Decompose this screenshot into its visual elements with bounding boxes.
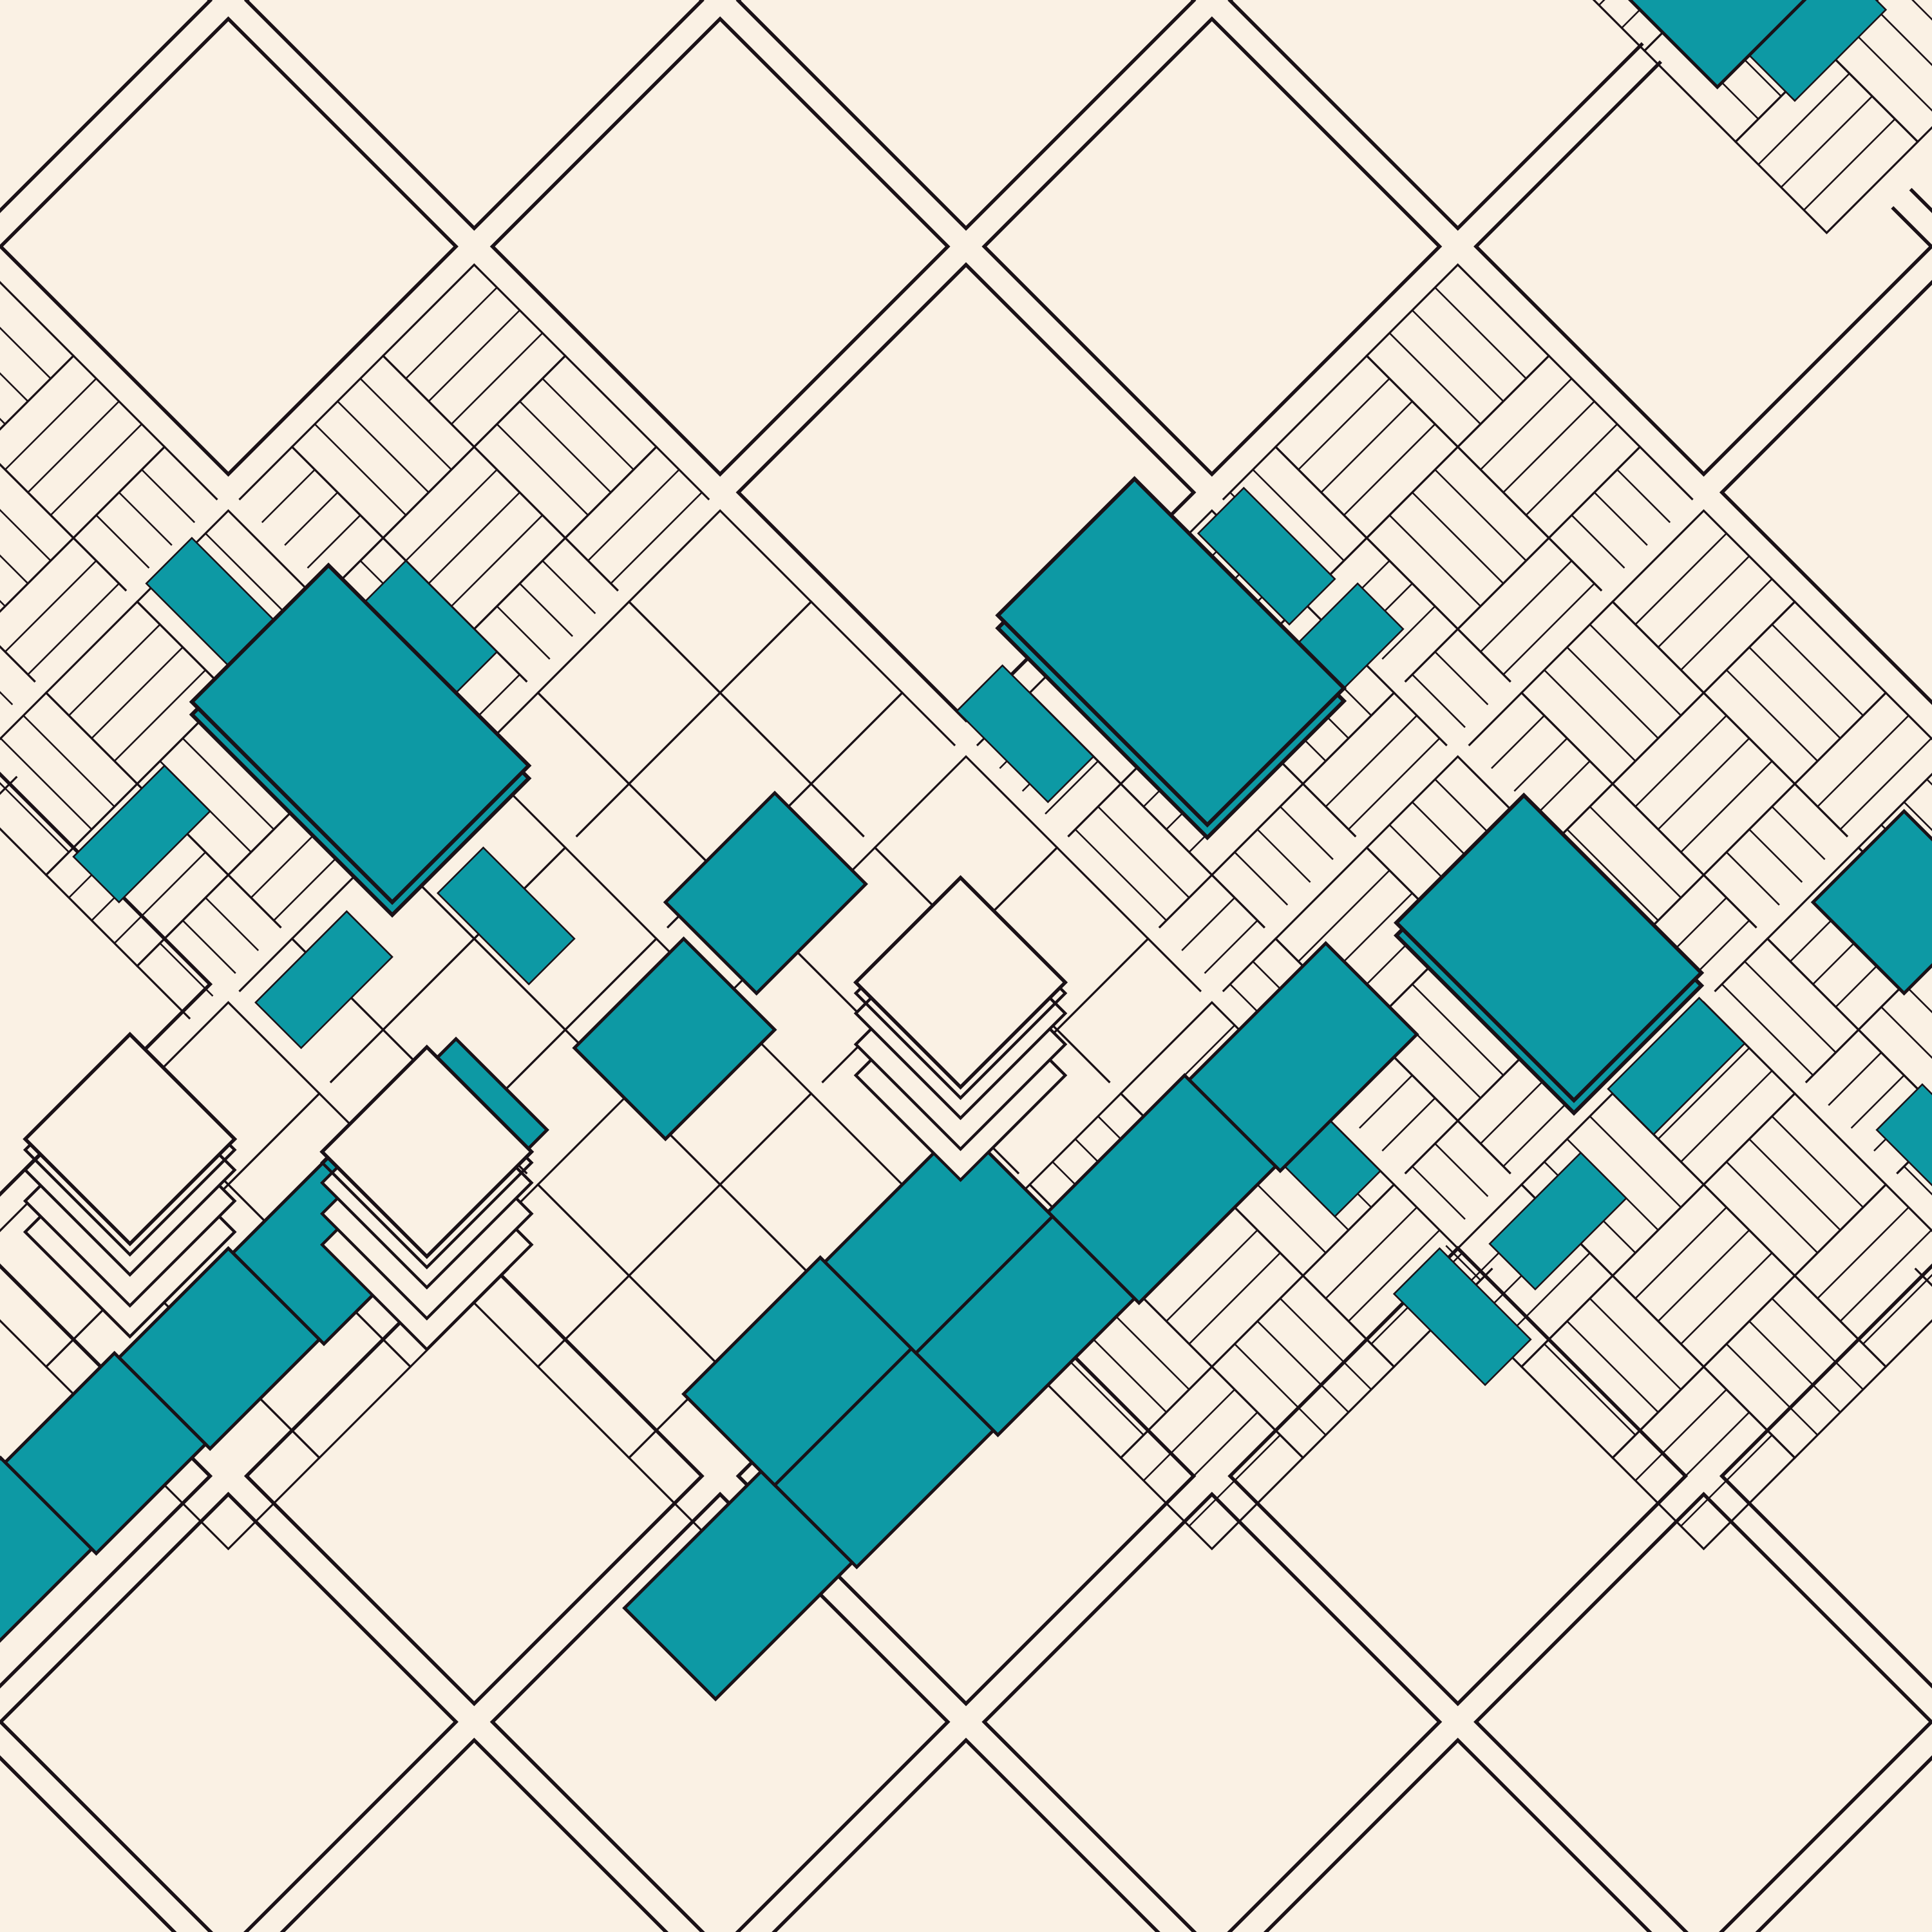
artwork-canvas — [0, 0, 1932, 1932]
artwork-container — [0, 0, 1932, 1932]
